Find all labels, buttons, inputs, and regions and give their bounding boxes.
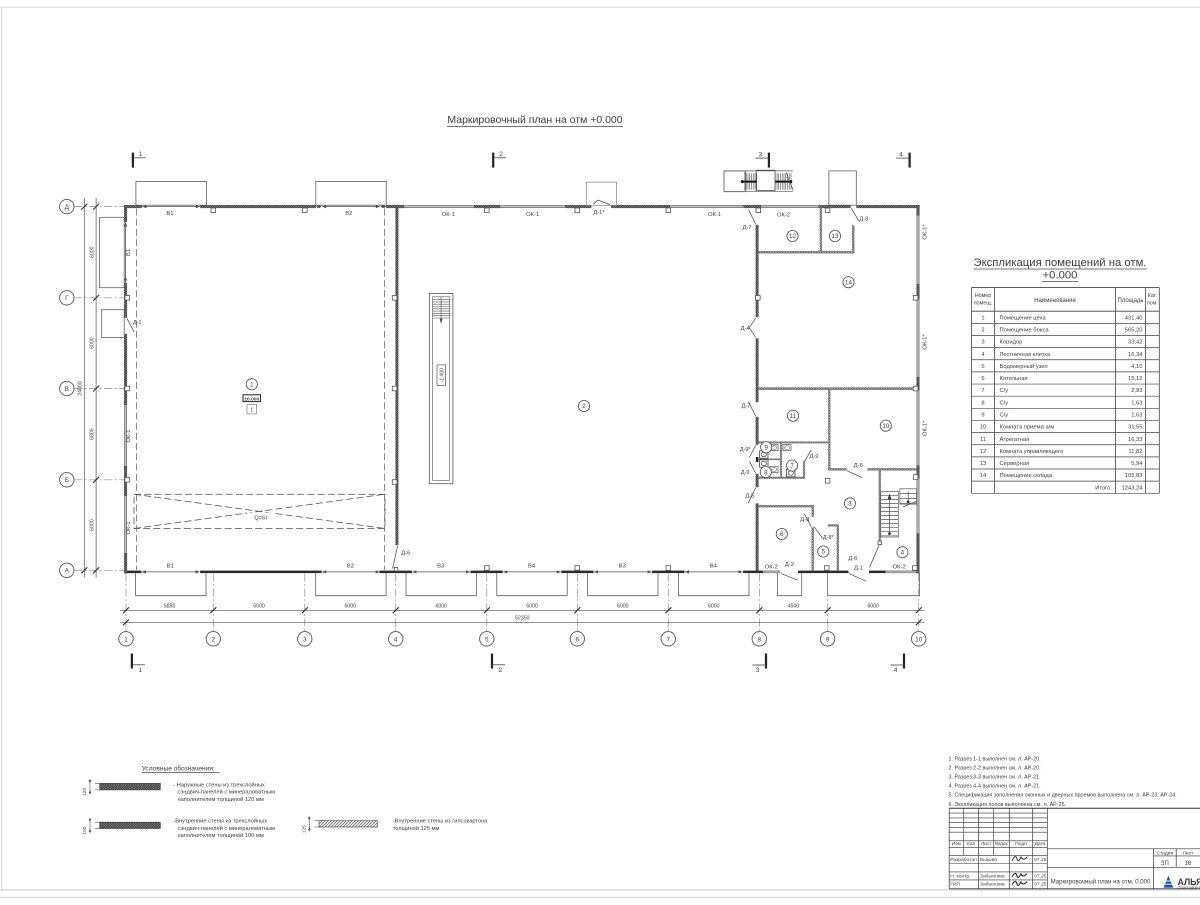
svg-text:5: 5 — [822, 549, 826, 556]
svg-text:Лист: Лист — [981, 841, 992, 847]
svg-text:Забьялова: Забьялова — [980, 874, 1005, 880]
svg-text:Д-6: Д-6 — [848, 556, 857, 562]
svg-text:Д-6: Д-6 — [854, 463, 863, 469]
svg-text:-1.400: -1.400 — [440, 368, 446, 382]
svg-text:6000: 6000 — [253, 603, 265, 609]
svg-text:13: 13 — [980, 461, 986, 467]
svg-text:ОК-1: ОК-1 — [442, 212, 455, 218]
svg-text:3: 3 — [759, 151, 763, 158]
svg-text:пом.: пом. — [1147, 300, 1158, 306]
svg-text:14: 14 — [845, 279, 852, 286]
svg-text:6000: 6000 — [867, 603, 879, 609]
svg-text:3: 3 — [756, 667, 760, 674]
svg-text:В: В — [65, 386, 69, 393]
svg-text:Q=5т: Q=5т — [254, 516, 268, 522]
svg-text:31,55: 31,55 — [1128, 425, 1143, 431]
svg-text:431,40: 431,40 — [1125, 315, 1143, 321]
svg-text:12: 12 — [789, 233, 796, 240]
svg-text:6000: 6000 — [435, 603, 447, 609]
svg-text:Условные обозначения:: Условные обозначения: — [142, 764, 215, 772]
svg-text:3: 3 — [303, 636, 307, 643]
svg-text:Агрегатная: Агрегатная — [1000, 437, 1030, 443]
svg-text:Д-6: Д-6 — [401, 551, 410, 557]
svg-text:Номер: Номер — [975, 293, 992, 299]
svg-text:10: 10 — [980, 425, 986, 431]
svg-text:Площадь: Площадь — [1117, 298, 1143, 304]
svg-text:Д-2: Д-2 — [785, 562, 794, 568]
svg-text:№док: №док — [995, 841, 1009, 847]
svg-text:В3: В3 — [619, 563, 626, 569]
svg-text:наполнителем толщиной 120 мм: наполнителем толщиной 120 мм — [178, 796, 264, 803]
svg-text:ОК-1*: ОК-1* — [923, 224, 929, 240]
svg-text:100: 100 — [82, 826, 88, 834]
svg-text:Серверная: Серверная — [1000, 461, 1030, 467]
svg-text:ОК-2: ОК-2 — [765, 564, 778, 570]
svg-text:ГИП: ГИП — [950, 882, 960, 888]
svg-text:Дата: Дата — [1035, 841, 1046, 847]
svg-text:6000: 6000 — [89, 519, 95, 531]
svg-text:2: 2 — [499, 151, 503, 158]
svg-text:5850: 5850 — [164, 603, 176, 609]
svg-text:2: 2 — [981, 328, 984, 334]
svg-text:Г: Г — [65, 295, 69, 302]
svg-text:9: 9 — [826, 636, 830, 643]
svg-text:В3: В3 — [437, 563, 444, 569]
svg-text:2. Разрез 2-2 выполнен см. л.: 2. Разрез 2-2 выполнен см. л. АР-20. — [949, 766, 1041, 772]
svg-text:6: 6 — [780, 531, 784, 538]
svg-text:16,33: 16,33 — [1128, 437, 1143, 443]
svg-text:- Наружные стены из трехслойны: - Наружные стены из трехслойных — [173, 781, 265, 788]
svg-text:ОК-1*: ОК-1* — [923, 420, 929, 436]
svg-text:Д-9: Д-9 — [809, 454, 818, 460]
svg-text:Д: Д — [65, 204, 70, 211]
svg-text:565,20: 565,20 — [1125, 328, 1143, 334]
svg-text:3: 3 — [848, 501, 852, 508]
svg-text:4. Разрез 4-4 выполнен см. л.: 4. Разрез 4-4 выполнен см. л. АР-21. — [949, 784, 1041, 790]
svg-text:125: 125 — [301, 825, 307, 833]
svg-text:4: 4 — [901, 550, 905, 557]
svg-text:-Внутренние стены из трехслойн: -Внутренние стены из трехслойных — [173, 818, 267, 825]
svg-text:Д-5: Д-5 — [745, 494, 754, 500]
svg-text:ОК-2: ОК-2 — [893, 564, 906, 570]
svg-text:В2: В2 — [347, 563, 354, 569]
svg-text:07.25: 07.25 — [1034, 882, 1047, 888]
svg-text:+0.000: +0.000 — [1043, 270, 1078, 282]
svg-text:Кат.: Кат. — [1148, 293, 1157, 299]
svg-text:1,63: 1,63 — [1131, 400, 1142, 406]
svg-text:1243,24: 1243,24 — [1122, 485, 1144, 491]
svg-text:120: 120 — [82, 788, 88, 796]
svg-text:Забьялова: Забьялова — [980, 882, 1005, 888]
svg-text:ОК-2: ОК-2 — [777, 212, 790, 218]
svg-text:Д-4: Д-4 — [741, 326, 751, 332]
svg-text:1: 1 — [124, 636, 128, 643]
svg-text:Комната управляющего: Комната управляющего — [1000, 449, 1064, 455]
svg-text:Д-1*: Д-1* — [593, 210, 605, 216]
svg-text:4500: 4500 — [788, 603, 800, 609]
svg-text:Д-8: Д-8 — [800, 517, 809, 523]
svg-text:5: 5 — [981, 364, 984, 370]
svg-text:Д-8*: Д-8* — [823, 535, 835, 541]
svg-text:толщиной 125 мм: толщиной 125 мм — [393, 825, 440, 832]
svg-text:-Внутренние стены из гипсокарт: -Внутренние стены из гипсокартона — [393, 819, 489, 825]
svg-text:1: 1 — [250, 382, 254, 389]
svg-text:В1: В1 — [167, 563, 174, 569]
svg-text:2,93: 2,93 — [1131, 388, 1142, 394]
svg-text:1: 1 — [138, 667, 142, 674]
svg-text:1: 1 — [139, 151, 143, 158]
svg-text:5. Спецификация заполнения око: 5. Спецификация заполнения оконных и две… — [949, 793, 1177, 799]
svg-text:Д-7: Д-7 — [741, 403, 750, 409]
svg-text:8: 8 — [758, 636, 762, 643]
svg-text:11: 11 — [980, 437, 986, 443]
svg-text:10: 10 — [915, 636, 923, 643]
svg-text:Н. контр.: Н. контр. — [950, 874, 970, 880]
svg-text:ОК-1*: ОК-1* — [923, 334, 929, 350]
svg-text:2: 2 — [498, 667, 502, 674]
svg-text:±0.000: ±0.000 — [244, 396, 259, 402]
svg-text:Д-7: Д-7 — [742, 225, 751, 231]
svg-text:5: 5 — [485, 636, 489, 643]
svg-text:наполнителем толщиной 100 мм: наполнителем толщиной 100 мм — [178, 832, 264, 839]
svg-text:3. Разрез 3-3 выполнен см. л.: 3. Разрез 3-3 выполнен см. л. АР-21. — [949, 775, 1041, 781]
svg-text:6000: 6000 — [344, 603, 356, 609]
svg-text:Кол: Кол — [967, 841, 975, 847]
svg-text:7: 7 — [981, 388, 984, 394]
svg-text:Разработал: Разработал — [950, 857, 977, 863]
svg-text:С/у: С/у — [1000, 388, 1009, 394]
svg-text:Изм: Изм — [952, 841, 962, 847]
svg-text:16: 16 — [1185, 861, 1192, 867]
svg-text:В4: В4 — [528, 563, 536, 569]
svg-text:Комната приема а/м: Комната приема а/м — [1000, 425, 1055, 431]
svg-text:6000: 6000 — [708, 603, 720, 609]
svg-text:Д-9: Д-9 — [741, 470, 750, 476]
svg-text:Итого:: Итого: — [1095, 485, 1112, 491]
svg-text:С/у: С/у — [1000, 413, 1009, 419]
svg-text:33,42: 33,42 — [1128, 340, 1143, 346]
svg-text:Экспликация помещений на отм.: Экспликация помещений на отм. — [973, 257, 1146, 269]
svg-text:14: 14 — [980, 473, 987, 479]
svg-text:Д-9*: Д-9* — [740, 447, 752, 453]
svg-text:строительная компания: строительная компания — [1178, 886, 1200, 890]
svg-text:1: 1 — [250, 408, 253, 414]
svg-text:Наименование: Наименование — [1034, 298, 1076, 304]
svg-text:4,10: 4,10 — [1131, 364, 1142, 370]
svg-text:16,34: 16,34 — [1128, 352, 1143, 358]
svg-text:С/у: С/у — [1000, 400, 1009, 406]
svg-text:9: 9 — [981, 413, 984, 419]
svg-text:Котельная: Котельная — [1000, 376, 1028, 382]
svg-text:Водомерный узел: Водомерный узел — [1000, 363, 1048, 370]
svg-text:8: 8 — [764, 469, 768, 476]
svg-text:Помещение склада: Помещение склада — [1000, 473, 1053, 479]
svg-text:Маркировочный план на отм +0.0: Маркировочный план на отм +0.000 — [447, 114, 622, 126]
svg-text:Д-1: Д-1 — [133, 320, 142, 326]
svg-text:ОК-1: ОК-1 — [126, 521, 132, 534]
svg-text:52350: 52350 — [515, 616, 530, 622]
svg-text:6000: 6000 — [526, 603, 538, 609]
svg-text:24000: 24000 — [78, 381, 84, 396]
svg-text:Стадия: Стадия — [1156, 850, 1173, 856]
svg-text:В1: В1 — [126, 249, 132, 256]
svg-text:15,12: 15,12 — [1128, 376, 1143, 382]
svg-text:помещ.: помещ. — [974, 301, 993, 307]
svg-text:Подп: Подп — [1015, 841, 1027, 847]
svg-text:Б: Б — [65, 477, 69, 484]
svg-text:6: 6 — [981, 376, 984, 382]
svg-text:сэндвич-панелей с минераловатн: сэндвич-панелей с минераловатным — [178, 789, 275, 796]
svg-text:6: 6 — [576, 636, 580, 643]
svg-text:9: 9 — [764, 444, 768, 451]
svg-text:6000: 6000 — [89, 246, 95, 258]
svg-text:сэндвич-панелей с минераловатн: сэндвич-панелей с минераловатным — [178, 825, 275, 832]
svg-text:ЗП: ЗП — [1161, 861, 1169, 867]
svg-text:Лист: Лист — [1183, 850, 1194, 856]
svg-text:2: 2 — [212, 636, 216, 643]
svg-text:7: 7 — [790, 463, 794, 470]
svg-text:В4: В4 — [710, 563, 718, 569]
svg-text:2: 2 — [582, 403, 586, 410]
svg-text:6000: 6000 — [89, 337, 95, 349]
svg-text:13: 13 — [832, 233, 839, 240]
svg-text:Коридор: Коридор — [1000, 340, 1023, 346]
svg-text:3: 3 — [981, 340, 984, 346]
svg-text:6. Экспликация полов выполнена: 6. Экспликация полов выполнена см. л. АР… — [949, 802, 1067, 808]
svg-text:12: 12 — [980, 449, 986, 455]
svg-text:4: 4 — [899, 151, 903, 158]
svg-text:4: 4 — [394, 636, 398, 643]
svg-text:10: 10 — [882, 423, 889, 430]
svg-text:Д-1: Д-1 — [854, 565, 863, 571]
svg-text:6000: 6000 — [617, 603, 629, 609]
svg-text:ОК-1: ОК-1 — [708, 212, 721, 218]
svg-text:Помещение бокса: Помещение бокса — [1000, 328, 1050, 334]
svg-text:11: 11 — [790, 413, 797, 420]
svg-text:ОК-1: ОК-1 — [526, 212, 539, 218]
svg-text:В2: В2 — [345, 211, 352, 217]
svg-text:6000: 6000 — [89, 428, 95, 440]
svg-text:Лестничная клетка: Лестничная клетка — [1000, 352, 1052, 358]
svg-text:11,82: 11,82 — [1128, 449, 1142, 455]
svg-text:105,83: 105,83 — [1125, 473, 1143, 479]
svg-text:Быкова: Быкова — [980, 857, 997, 863]
svg-text:А: А — [65, 568, 70, 575]
svg-text:4: 4 — [894, 667, 898, 674]
svg-text:Маркировочный план на отм. 0.0: Маркировочный план на отм. 0.000 — [1051, 879, 1151, 886]
svg-text:В1: В1 — [166, 211, 173, 217]
svg-text:5,94: 5,94 — [1131, 461, 1143, 467]
svg-text:Д-8: Д-8 — [859, 217, 868, 223]
svg-text:7: 7 — [667, 636, 671, 643]
svg-text:1. Разрез 1-1 выполнен см. л.: 1. Разрез 1-1 выполнен см. л. АР-20. — [949, 757, 1041, 763]
svg-text:07.25: 07.25 — [1034, 874, 1047, 880]
svg-text:1: 1 — [981, 315, 984, 321]
svg-text:Помещение цеха: Помещение цеха — [1000, 315, 1047, 321]
svg-text:8: 8 — [981, 400, 984, 406]
svg-text:ОК-1: ОК-1 — [126, 429, 132, 442]
svg-text:07.25: 07.25 — [1034, 857, 1047, 863]
svg-text:1,63: 1,63 — [1131, 413, 1142, 419]
